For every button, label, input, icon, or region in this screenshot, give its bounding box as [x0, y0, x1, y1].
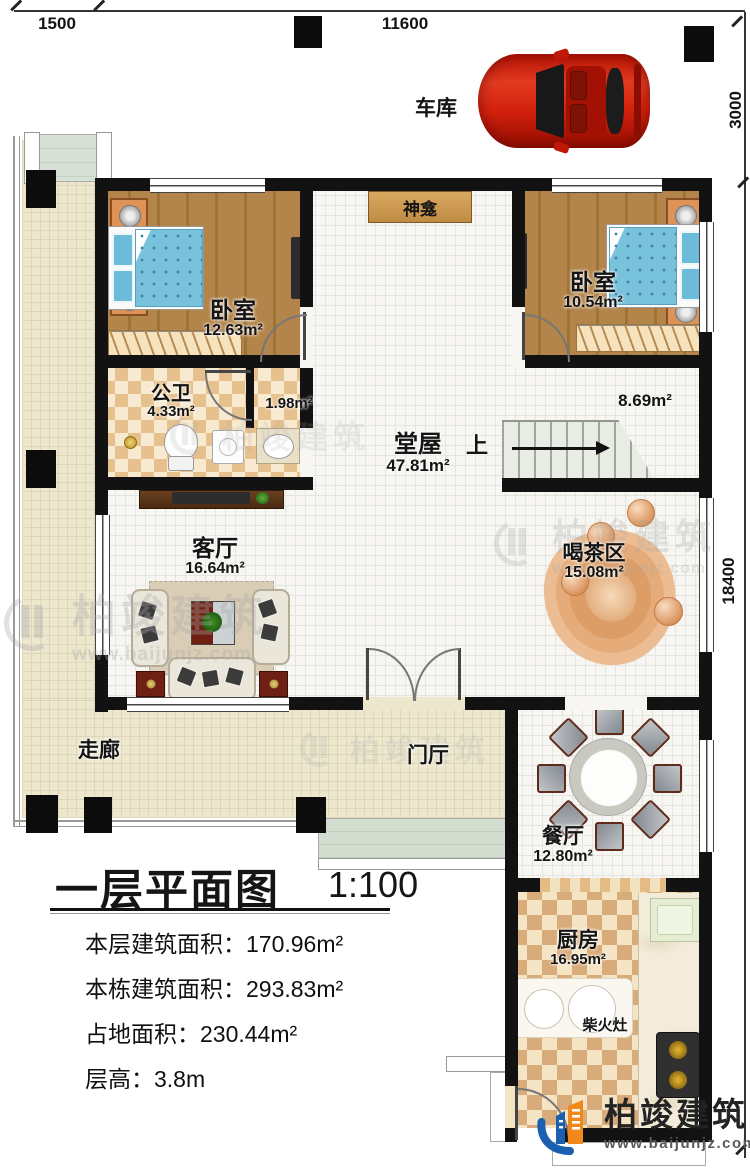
- title-underline-thin: [50, 913, 390, 914]
- end-table: [259, 671, 288, 697]
- pillow: [112, 233, 134, 267]
- legend-row-height: 层高：3.8m: [85, 1060, 205, 1094]
- brand-logo-icon: [536, 1094, 596, 1156]
- legend-row-footprint: 占地面积：230.44m²: [85, 1015, 297, 1049]
- stair-arrow-line: [512, 447, 596, 450]
- wall-marker: [684, 26, 714, 62]
- bedroom-right-area: 10.54m²: [552, 294, 634, 311]
- gas-burner: [669, 1041, 687, 1059]
- sofa-cushion: [201, 669, 221, 689]
- sink-basin: [657, 905, 693, 935]
- stove-pot-hole: [524, 989, 564, 1029]
- stair-arrow-head: [596, 441, 610, 455]
- end-table: [136, 671, 165, 697]
- porch-column: [26, 450, 56, 488]
- title-underline: [50, 908, 390, 911]
- window: [95, 515, 110, 655]
- porch-column: [296, 797, 326, 833]
- stairs-up-label: 上: [462, 434, 492, 458]
- gas-stove: [656, 1032, 700, 1098]
- kitchen-sink: [650, 898, 700, 942]
- garage-label: 车库: [404, 98, 468, 121]
- kitchen-area: 16.95m²: [545, 952, 611, 968]
- wood-stove-label: 柴火灶: [575, 1018, 635, 1034]
- bathroom-area: 4.33m²: [136, 404, 206, 420]
- window: [699, 222, 714, 332]
- car-body: [478, 54, 650, 148]
- porch-column: [84, 797, 112, 833]
- dining-chair: [595, 822, 624, 851]
- porch-column: [26, 170, 56, 208]
- dining-opening: [565, 697, 647, 710]
- kitchen-name: 厨房: [551, 930, 605, 953]
- porch-railing: [19, 136, 20, 826]
- car-seat: [570, 71, 587, 100]
- right-dimension-line: [744, 12, 746, 1158]
- dining-chair: [653, 764, 682, 793]
- wardrobe: [576, 324, 702, 352]
- dimension-18400: 18400: [719, 544, 739, 618]
- washer-door: [219, 438, 237, 456]
- car-spoiler: [634, 64, 641, 138]
- step-post: [96, 132, 112, 184]
- brand-site: www.baijunjz.com: [604, 1135, 750, 1152]
- sink: [263, 434, 294, 459]
- living-name: 客厅: [180, 536, 250, 561]
- lamp-icon: [119, 205, 141, 227]
- bedroom-left-area: 12.63m²: [192, 322, 274, 339]
- foyer-steps: [318, 818, 514, 860]
- wall-marker: [294, 16, 322, 48]
- pillow: [112, 269, 134, 303]
- bedroom-right-name: 卧室: [558, 270, 628, 295]
- hall-area: 47.81m²: [376, 457, 460, 475]
- car-windshield: [536, 62, 564, 140]
- dimension-3000: 3000: [726, 80, 746, 140]
- tea-area: 15.08m²: [554, 564, 634, 581]
- car-seat: [570, 104, 587, 133]
- foyer-label: 门厅: [402, 745, 454, 768]
- floor-drain: [124, 436, 137, 449]
- tv: [172, 492, 250, 504]
- window: [127, 697, 289, 712]
- sofa-cushion: [259, 622, 279, 642]
- tea-stool: [627, 499, 655, 527]
- living-area: 16.64m²: [174, 560, 256, 577]
- dimension-1500: 1500: [28, 14, 86, 34]
- window: [150, 178, 265, 193]
- legend-row-building-area: 本栋建筑面积：293.83m²: [85, 970, 343, 1004]
- dining-chair: [537, 764, 566, 793]
- stairs-area: 8.69m²: [610, 392, 680, 410]
- toilet-tank: [168, 456, 194, 471]
- top-dimension-line: [14, 10, 745, 12]
- porch-column: [26, 795, 58, 833]
- dining-chair: [595, 706, 624, 735]
- legend-row-floor-area: 本层建筑面积：170.96m²: [85, 925, 343, 959]
- hall-name: 堂屋: [382, 432, 454, 458]
- window: [552, 178, 662, 193]
- plan-scale: 1:100: [328, 864, 418, 906]
- dining-table: [580, 749, 638, 807]
- porch-railing: [13, 136, 15, 826]
- washroom-area: 1.98m²: [256, 396, 322, 412]
- door-opening: [300, 428, 313, 477]
- dimension-11600: 11600: [372, 14, 438, 34]
- gas-burner: [669, 1071, 687, 1089]
- dim-tick: [737, 176, 749, 188]
- sink-counter: [256, 428, 300, 464]
- duvet: [135, 229, 203, 307]
- back-porch-window: [446, 1056, 510, 1072]
- plant: [256, 492, 269, 504]
- car-rear-window: [606, 68, 624, 134]
- dim-tick: [731, 15, 743, 27]
- floor-plan: 1500 11600 3000 18400 车库: [0, 0, 750, 1169]
- tea-name: 喝茶区: [554, 543, 634, 566]
- corridor-label: 走廊: [73, 740, 125, 763]
- brand-name: 柏竣建筑: [604, 1098, 750, 1131]
- bed: [108, 226, 204, 310]
- shrine-cabinet: 神龛: [368, 191, 472, 223]
- bedroom-left-name: 卧室: [198, 298, 268, 323]
- wall-stairs-south: [502, 478, 712, 492]
- window: [699, 740, 714, 852]
- car-top-view: [478, 54, 650, 148]
- shrine-label: 神龛: [403, 195, 437, 220]
- dining-name: 餐厅: [537, 826, 589, 849]
- kitchen-threshold: [540, 878, 666, 892]
- plant: [202, 612, 222, 632]
- wall-dining-west: [505, 697, 518, 1142]
- dining-area: 12.80m²: [528, 848, 598, 865]
- washing-machine: [212, 430, 244, 464]
- toilet: [164, 424, 198, 460]
- brand-logo: 柏竣建筑 www.baijunjz.com: [536, 1094, 750, 1156]
- tea-stool: [654, 597, 683, 626]
- wall-bath-south: [95, 477, 313, 490]
- window: [699, 498, 714, 652]
